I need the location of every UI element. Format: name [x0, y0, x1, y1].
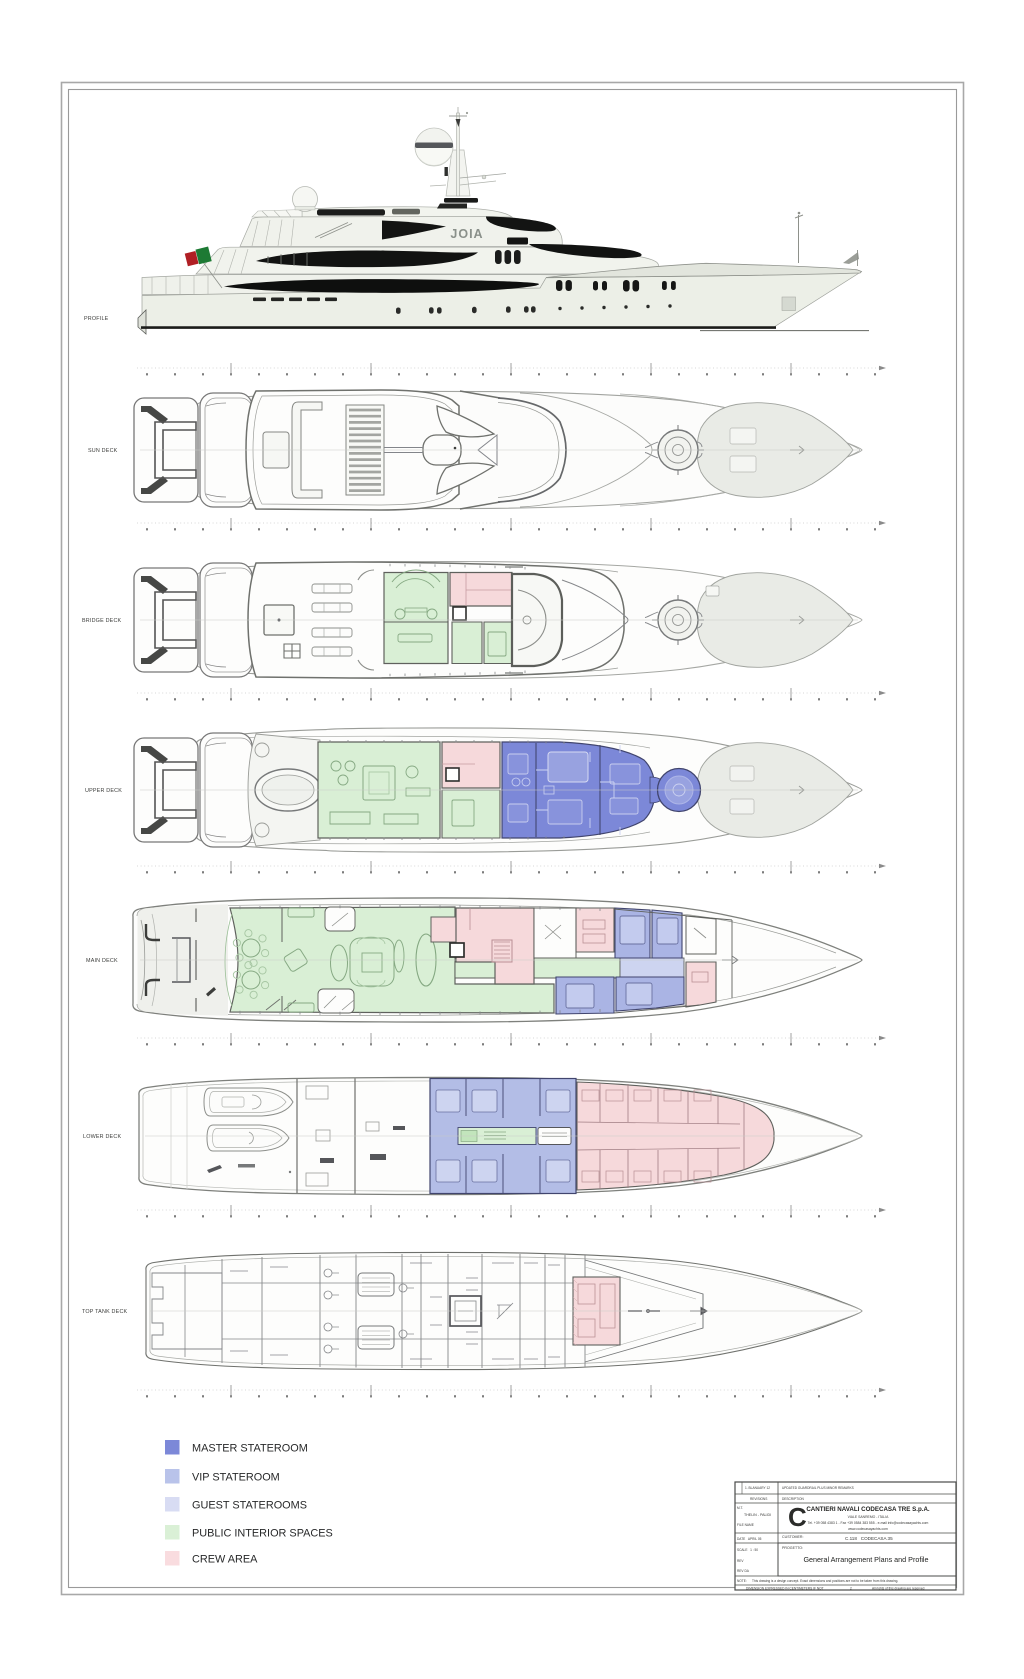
svg-text:GUEST STATEROOMS: GUEST STATEROOMS — [192, 1500, 307, 1512]
svg-text:PUBLIC INTERIOR SPACES: PUBLIC INTERIOR SPACES — [192, 1528, 333, 1540]
svg-text:SCALE 1 : 50: SCALE 1 : 50 — [737, 1548, 758, 1552]
svg-text:General Arrangement Plans and: General Arrangement Plans and Profile — [803, 1555, 928, 1564]
svg-text:CUSTOMER:: CUSTOMER: — [782, 1535, 804, 1539]
svg-text:M.T.: M.T. — [737, 1506, 743, 1510]
svg-text:2: 2 — [850, 1587, 852, 1591]
svg-text:DATE APRIL 05: DATE APRIL 05 — [737, 1537, 762, 1541]
svg-text:TOP TANK DECK: TOP TANK DECK — [82, 1309, 128, 1315]
svg-text:NOTE: This drawing is a d: NOTE: This drawing is a design concept. … — [737, 1579, 898, 1583]
svg-text:www.codecasayachts.com: www.codecasayachts.com — [848, 1527, 888, 1531]
svg-text:C.118 CODECASA 35: C.118 CODECASA 35 — [845, 1536, 893, 1541]
svg-text:UPPER DECK: UPPER DECK — [85, 788, 122, 794]
svg-text:REV: REV — [737, 1559, 744, 1563]
svg-text:C: C — [788, 1502, 807, 1532]
svg-text:VIP STATEROOM: VIP STATEROOM — [192, 1472, 280, 1484]
svg-text:CANTIERI NAVALI CODECASA TRE S: CANTIERI NAVALI CODECASA TRE S.p.A. — [806, 1506, 930, 1513]
svg-text:JOIA: JOIA — [450, 227, 483, 241]
svg-text:PROGETTO:: PROGETTO: — [782, 1546, 803, 1550]
svg-text:DIMENSION EXPRESSED IN CENTIME: DIMENSION EXPRESSED IN CENTIMETERS IF NO… — [746, 1587, 824, 1591]
svg-text:Tel. +39 058 4383 1 - Fax +39: Tel. +39 058 4383 1 - Fax +39 0584 383 5… — [808, 1521, 929, 1525]
svg-text:PROFILE: PROFILE — [84, 316, 109, 322]
svg-text:THELIN - PALIDI: THELIN - PALIDI — [744, 1513, 771, 1517]
svg-text:REVISIONS: REVISIONS — [750, 1497, 767, 1501]
svg-text:LOWER DECK: LOWER DECK — [83, 1134, 121, 1140]
svg-text:VIALE SANREMO - ITALIA: VIALE SANREMO - ITALIA — [848, 1515, 890, 1519]
svg-text:All rights of this drawing are: All rights of this drawing are reserved — [872, 1587, 925, 1591]
svg-text:REV DA: REV DA — [737, 1569, 750, 1573]
svg-text:MAIN DECK: MAIN DECK — [86, 958, 118, 964]
svg-text:BRIDGE DECK: BRIDGE DECK — [82, 618, 122, 624]
svg-text:DESCRIPTION: DESCRIPTION — [782, 1497, 804, 1501]
svg-text:MASTER STATEROOM: MASTER STATEROOM — [192, 1443, 308, 1455]
svg-text:1. BLANUARY 12: 1. BLANUARY 12 — [745, 1486, 770, 1490]
svg-text:UPDATED GUARDRAIL PLUS MINOR R: UPDATED GUARDRAIL PLUS MINOR REMARKS — [782, 1486, 854, 1490]
svg-text:FILE NAME: FILE NAME — [737, 1523, 754, 1527]
svg-text:CREW AREA: CREW AREA — [192, 1554, 258, 1566]
svg-text:SUN DECK: SUN DECK — [88, 448, 118, 454]
